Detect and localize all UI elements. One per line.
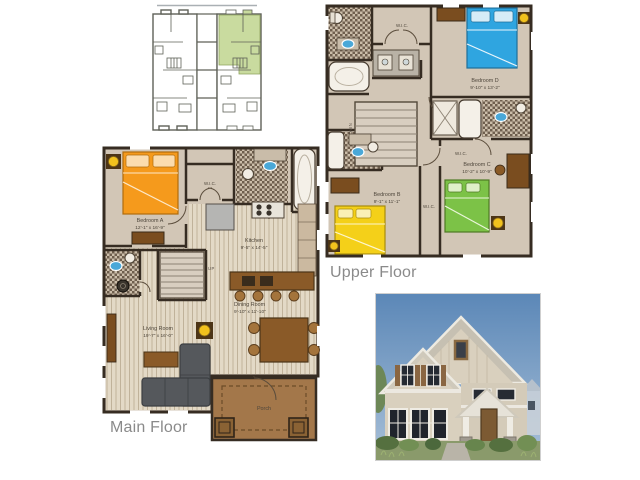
porch-label: Porch <box>257 406 271 412</box>
desk-icon <box>132 232 164 244</box>
main-wic-label: W.I.C. <box>204 181 216 186</box>
sink-icon <box>495 113 507 122</box>
kitchen-dims: 9'-5" x 14'-5" <box>241 245 268 251</box>
dining-room-name: Dining Room <box>234 302 266 308</box>
sink-icon <box>110 262 122 271</box>
front-door <box>481 409 497 443</box>
lamp-icon <box>199 325 210 336</box>
washer-icon <box>117 280 129 292</box>
porch-post-icon <box>215 418 234 437</box>
lamp-icon <box>109 157 119 167</box>
upper-wic-right-label: W.I.C. <box>455 151 467 156</box>
porch-post-icon <box>289 418 308 437</box>
trim-band <box>385 389 461 393</box>
stairs-up-label: UP <box>208 266 215 271</box>
bathtub-icon <box>459 100 481 138</box>
bedroom-d-name: Bedroom D <box>471 78 498 84</box>
living-room-name: Living Room <box>143 326 173 332</box>
upper-right-window <box>497 389 515 400</box>
toilet-icon <box>368 142 378 152</box>
sink-icon <box>352 148 364 157</box>
main-floor-label: Main Floor <box>110 419 188 437</box>
attic-window <box>455 341 467 359</box>
living-window <box>433 409 447 439</box>
bedroom-b-dims: 9'-1" x 11'-1" <box>374 199 401 205</box>
dresser-icon <box>437 8 465 21</box>
stool-icon <box>289 291 299 301</box>
stool-icon <box>271 291 281 301</box>
floorplan-sheet: W.I.C. Bedroom D 9'-10" x 13'-2" <box>0 0 640 480</box>
upper-floor-label: Upper Floor <box>330 264 417 282</box>
chair-icon <box>249 345 260 356</box>
upper-double-vanity <box>373 50 419 76</box>
upper-wic-top-label: W.I.C. <box>396 23 408 28</box>
upper-floor-plan: W.I.C. Bedroom D 9'-10" x 13'-2" <box>325 4 535 262</box>
desk-icon <box>331 178 359 193</box>
stove-icon <box>252 202 284 218</box>
key-plan-highlight-unit <box>219 15 260 74</box>
house-exterior-photo <box>375 293 541 461</box>
chair-icon <box>249 323 260 334</box>
bedroom-c-dims: 10'-2" x 10'-9" <box>462 169 492 175</box>
bedroom-b-name: Bedroom B <box>374 192 401 198</box>
lamp-icon <box>520 14 529 23</box>
key-plan-unit-left <box>153 10 197 130</box>
key-plan-center-hall <box>197 14 217 130</box>
living-room-dims: 19'-7" x 16'-0" <box>143 333 173 339</box>
dining-room-dims: 9'-10" x 11'-10" <box>234 309 266 315</box>
lamp-icon <box>330 242 338 250</box>
fridge-icon <box>206 204 234 230</box>
main-floor-plan: Bedroom A 12'-1" x 16'-9" W.I.C. <box>102 146 322 446</box>
bedroom-c-name: Bedroom C <box>463 162 490 168</box>
console-icon <box>107 314 116 362</box>
building-key-plan <box>143 2 271 140</box>
upper-wic-middle-label: W.I.C. <box>423 204 435 209</box>
stool-icon <box>253 291 263 301</box>
sink-icon <box>342 40 354 48</box>
bathtub-icon <box>328 132 344 169</box>
bedroom-a-name: Bedroom A <box>137 218 164 224</box>
bedroom-a-dims: 12'-1" x 16'-9" <box>135 225 165 231</box>
toilet-icon <box>125 253 135 263</box>
toilet-icon <box>516 103 526 113</box>
toilet-icon <box>243 169 254 180</box>
chair-icon <box>309 345 320 356</box>
porch: Porch <box>212 378 316 440</box>
desk-icon <box>507 154 529 188</box>
kitchen-name: Kitchen <box>245 238 263 244</box>
dining-table-icon <box>260 318 308 362</box>
stool-icon <box>235 291 245 301</box>
chair-icon <box>495 165 505 175</box>
coffee-table-icon <box>144 352 178 367</box>
bedroom-d-dims: 9'-10" x 13'-2" <box>470 85 500 91</box>
lamp-icon <box>493 218 503 228</box>
sink-icon <box>264 162 277 171</box>
